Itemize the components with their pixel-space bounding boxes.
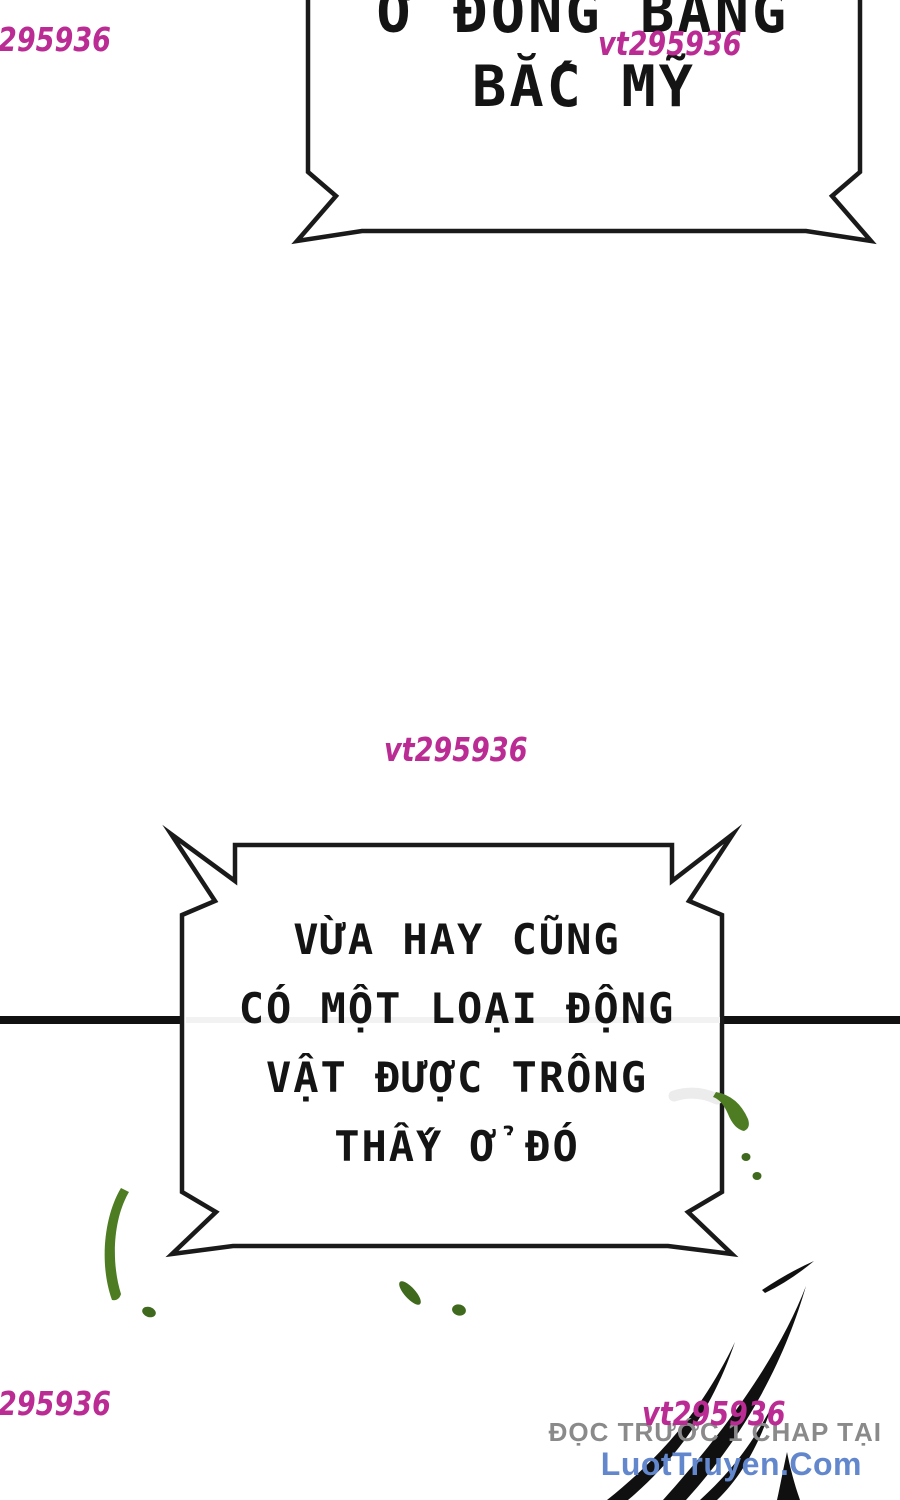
promo-site-link: LuotTruyen.Com bbox=[601, 1446, 862, 1483]
bubble-text-line: BẮC MỸ bbox=[318, 50, 850, 124]
main-bubble-text: VỪA HAY CŨNG CÓ MỘT LOẠI ĐỘNG VẬT ĐƯỢC T… bbox=[192, 905, 722, 1181]
green-dot bbox=[141, 1305, 158, 1319]
watermark: vt295936 bbox=[642, 1394, 786, 1433]
bubble-text-line: Ở ĐỒNG BẰNG bbox=[318, 0, 850, 50]
green-crescent-stroke bbox=[105, 1188, 129, 1300]
bubble-text-line: VẬT ĐƯỢC TRÔNG bbox=[192, 1043, 722, 1112]
divider-right-segment bbox=[720, 1016, 900, 1024]
watermark: 295936 bbox=[0, 1384, 111, 1423]
bubble-text-line: CÓ MỘT LOẠI ĐỘNG bbox=[192, 974, 722, 1043]
claw-accent-sliver bbox=[762, 1261, 814, 1293]
comic-page: Ở ĐỒNG BẰNG BẮC MỸ VỪA HAY CŨNG CÓ MỘT L… bbox=[0, 0, 900, 1500]
bubble-text-line: THẤY Ở ĐÓ bbox=[192, 1112, 722, 1181]
green-dot bbox=[753, 1172, 762, 1180]
watermark: vt295936 bbox=[598, 24, 742, 63]
green-dot bbox=[451, 1303, 467, 1317]
green-dot bbox=[742, 1153, 751, 1161]
watermark: vt295936 bbox=[384, 730, 528, 769]
green-tick bbox=[396, 1278, 424, 1308]
watermark: 295936 bbox=[0, 20, 111, 59]
divider-left-segment bbox=[0, 1016, 184, 1024]
top-bubble-text: Ở ĐỒNG BẰNG BẮC MỸ bbox=[318, 0, 850, 124]
bubble-text-line: VỪA HAY CŨNG bbox=[192, 905, 722, 974]
